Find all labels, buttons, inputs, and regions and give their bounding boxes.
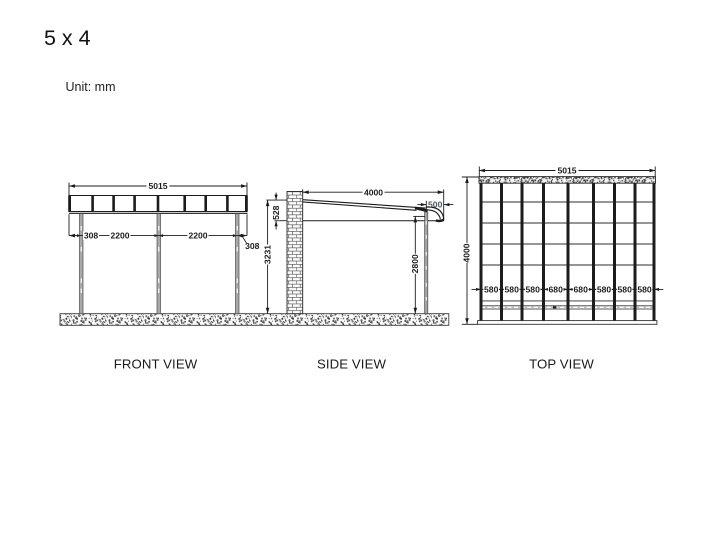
svg-text:TOP VIEW: TOP VIEW	[529, 356, 594, 371]
svg-text:2200: 2200	[110, 231, 129, 241]
svg-text:3231: 3231	[262, 245, 272, 264]
svg-text:SIDE VIEW: SIDE VIEW	[317, 356, 386, 371]
svg-text:580: 580	[526, 284, 541, 294]
svg-text:580: 580	[505, 284, 520, 294]
svg-text:308: 308	[245, 241, 260, 251]
svg-text:5015: 5015	[148, 181, 167, 191]
svg-text:Unit: mm: Unit: mm	[66, 80, 116, 94]
svg-text:5 x 4: 5 x 4	[44, 26, 91, 50]
svg-text:528: 528	[271, 205, 281, 220]
svg-text:680: 680	[549, 284, 564, 294]
svg-text:308: 308	[84, 231, 99, 241]
svg-text:FRONT VIEW: FRONT VIEW	[114, 356, 198, 371]
svg-text:580: 580	[637, 284, 652, 294]
svg-text:580: 580	[618, 284, 633, 294]
svg-text:500: 500	[428, 200, 443, 210]
svg-text:680: 680	[574, 284, 589, 294]
svg-text:580: 580	[484, 284, 499, 294]
svg-text:5015: 5015	[557, 166, 576, 176]
svg-text:4000: 4000	[364, 187, 383, 197]
svg-text:2800: 2800	[410, 254, 420, 273]
svg-text:2200: 2200	[188, 231, 207, 241]
svg-text:4000: 4000	[462, 243, 472, 262]
svg-text:580: 580	[597, 284, 612, 294]
